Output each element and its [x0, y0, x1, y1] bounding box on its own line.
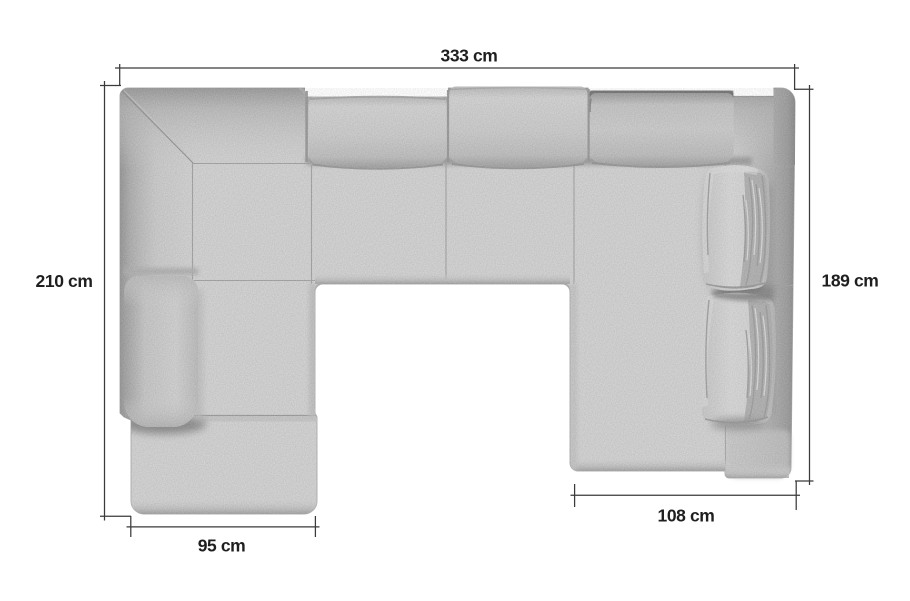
svg-text:95 cm: 95 cm	[198, 536, 246, 556]
svg-text:210 cm: 210 cm	[36, 271, 93, 291]
svg-text:108 cm: 108 cm	[658, 506, 715, 526]
svg-text:189 cm: 189 cm	[822, 271, 879, 291]
svg-text:333 cm: 333 cm	[441, 46, 498, 66]
